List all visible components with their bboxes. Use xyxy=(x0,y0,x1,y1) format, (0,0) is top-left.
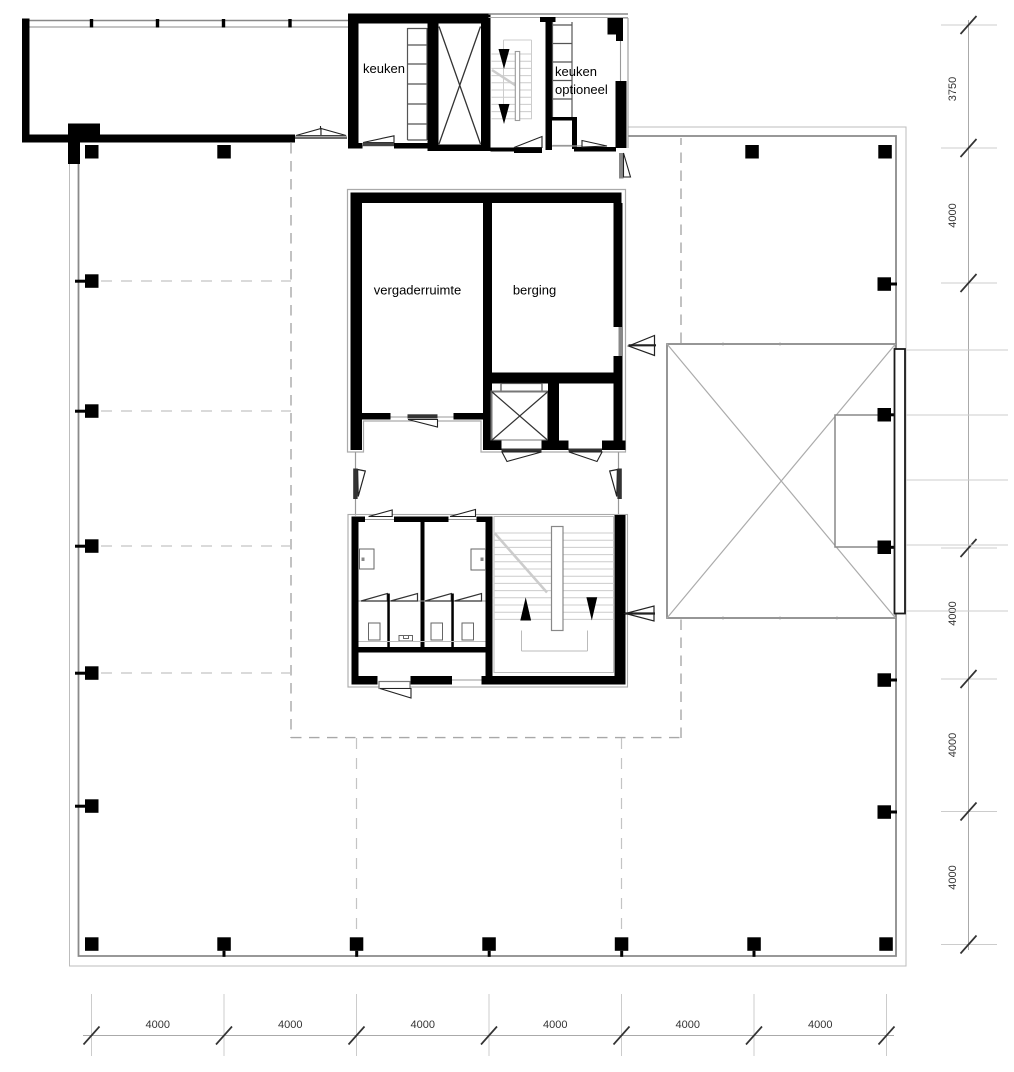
svg-text:4000: 4000 xyxy=(947,865,959,889)
svg-text:4000: 4000 xyxy=(808,1019,832,1031)
svg-text:keuken: keuken xyxy=(363,61,405,76)
svg-text:4000: 4000 xyxy=(411,1019,435,1031)
svg-text:vergaderruimte: vergaderruimte xyxy=(374,283,461,298)
svg-text:3750: 3750 xyxy=(947,77,959,101)
svg-text:4000: 4000 xyxy=(146,1019,170,1031)
svg-text:optioneel: optioneel xyxy=(555,82,608,97)
svg-text:4000: 4000 xyxy=(278,1019,302,1031)
svg-text:keuken: keuken xyxy=(555,64,597,79)
svg-text:4000: 4000 xyxy=(676,1019,700,1031)
svg-text:4000: 4000 xyxy=(543,1019,567,1031)
svg-text:4000: 4000 xyxy=(947,203,959,227)
svg-text:4000: 4000 xyxy=(947,601,959,625)
svg-text:berging: berging xyxy=(513,283,556,298)
svg-text:4000: 4000 xyxy=(947,733,959,757)
